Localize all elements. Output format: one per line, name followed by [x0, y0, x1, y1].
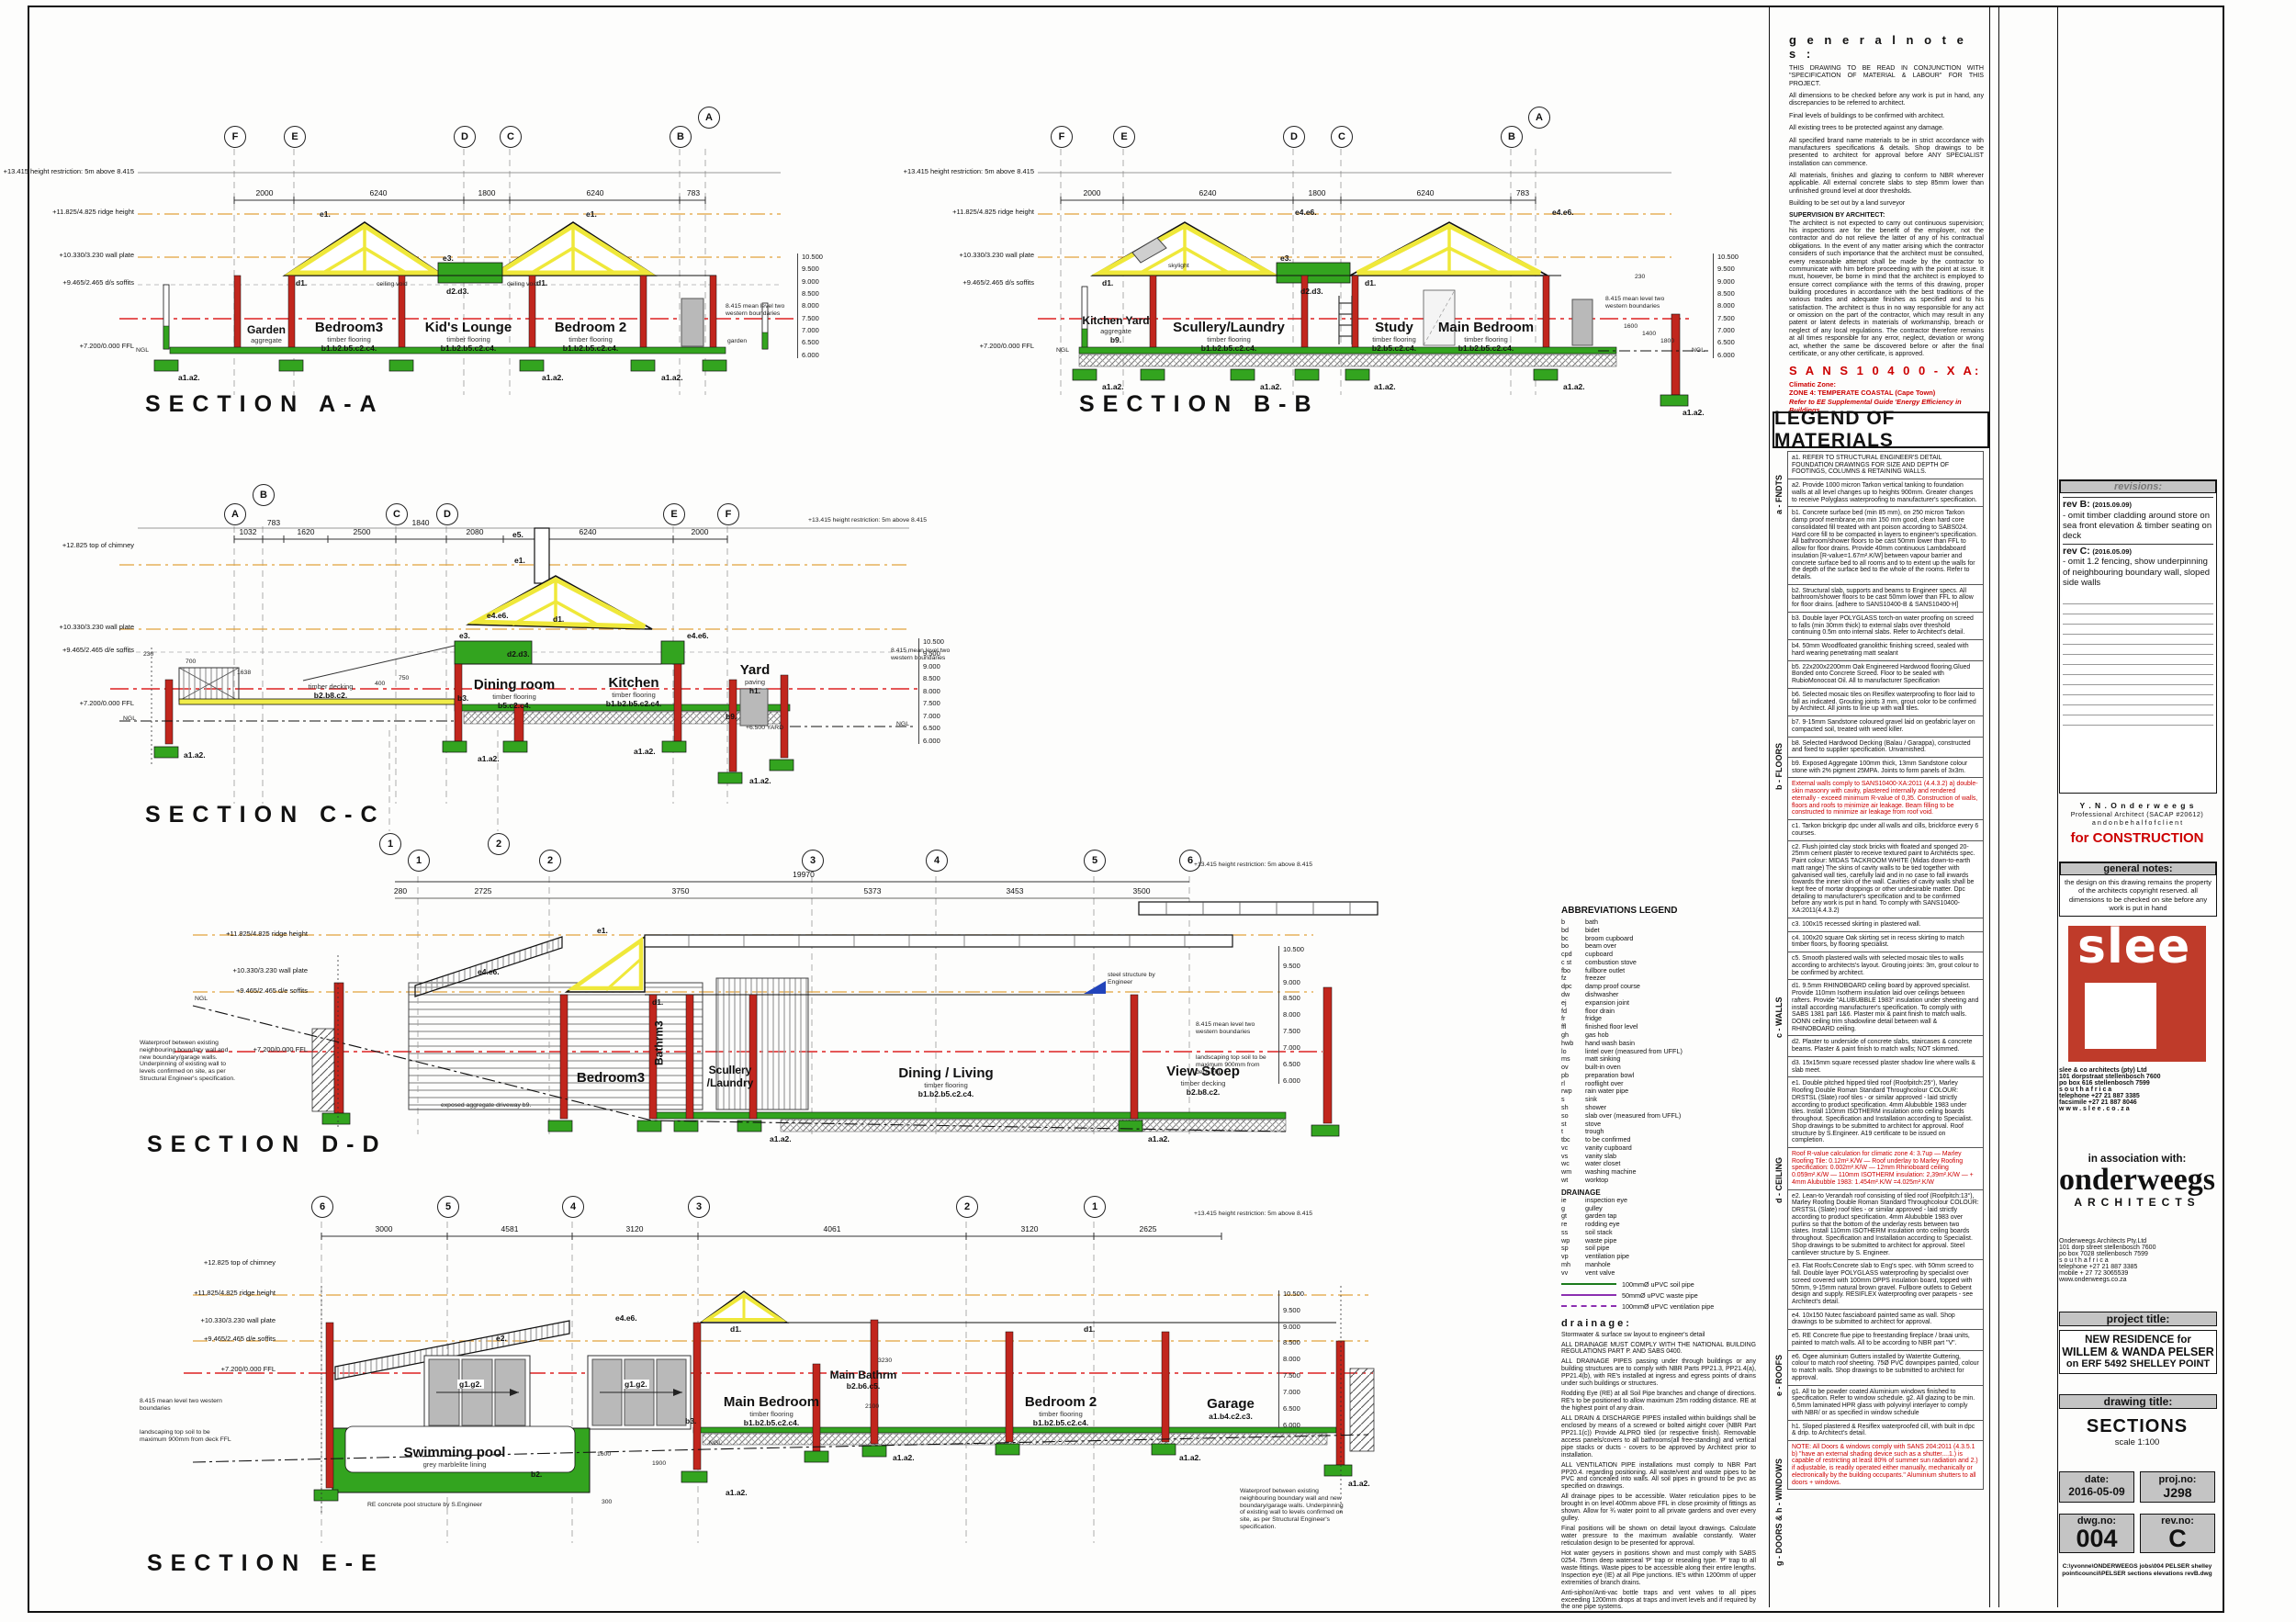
legend-item: e2. Lean-to Verandah roof consisting of … — [1787, 1189, 1984, 1261]
level-tick: 9.500 — [1717, 265, 1739, 273]
architect-behalf: a n d o n b e h a l f o f c l i e n t — [2059, 818, 2215, 827]
dimension: 2000 — [256, 188, 274, 197]
drainage-paragraph: ALL DRAIN & DISCHARGE PIPES installed wi… — [1561, 1415, 1756, 1459]
level-annotation: +11.825/4.825 ridge height — [194, 1289, 276, 1297]
level-tick: 10.500 — [923, 638, 944, 646]
level-tick: 8.000 — [802, 302, 823, 310]
date-value: 2016-05-09 — [2060, 1485, 2133, 1498]
room-label: Kid's Loungetimber flooringb1.b2.b5.c2.c… — [425, 320, 512, 353]
side-dim: 1800 — [1660, 338, 1674, 344]
note-paragraph: All specified brand name materials to be… — [1789, 137, 1984, 167]
legend-divider-left — [1769, 7, 1770, 1607]
supervision-text: The architect is not expected to carry o… — [1789, 220, 1984, 357]
dimension: 4581 — [501, 1224, 519, 1233]
level-tick: 8.500 — [923, 675, 944, 682]
grid-bubble: D — [436, 503, 458, 525]
dimension-total: 19970 — [793, 870, 815, 879]
landscaping-note: landscaping top soil to be maximum 900mm… — [1196, 1054, 1269, 1076]
grid-bubble: C — [1331, 126, 1353, 148]
slee-logo-word: slee — [2077, 926, 2190, 969]
side-dim: 1400 — [1642, 331, 1656, 337]
revisions-box: revisions: rev B: (2015.09.09) - omit ti… — [2059, 479, 2217, 794]
dimension: 3120 — [626, 1224, 644, 1233]
dimension: 1800 — [478, 188, 496, 197]
legend-item: a2. Provide 1000 micron Tarkon vertical … — [1787, 479, 1984, 507]
footing-code: a1.a2. — [1260, 382, 1282, 391]
glazing-code: g1.g2. — [457, 1380, 484, 1389]
waterproof-note: Waterproof between existing neighbouring… — [1240, 1488, 1350, 1531]
legend-category: b - FLOORS — [1774, 743, 1784, 790]
contact-line: po box 616 stellenbosch 7599 — [2059, 1080, 2215, 1087]
legend-title: LEGEND OF MATERIALS — [1773, 411, 1989, 448]
code: e3. — [443, 253, 454, 263]
level-annotation: +9.465/2.465 d/s soffits — [962, 278, 1034, 287]
level-annotation: +10.330/3.230 wall plate — [200, 1316, 276, 1324]
footing-code: a1.a2. — [542, 373, 564, 382]
code: d1. — [296, 278, 307, 287]
general-notes-paragraphs: THIS DRAWING TO BE READ IN CONJUNCTION W… — [1789, 64, 1984, 207]
dimension: 5373 — [864, 886, 882, 895]
dimension: 2080 — [467, 527, 484, 536]
roof-code: e4.e6. — [1552, 208, 1574, 217]
landscaping-note: landscaping top soil to be maximum 900mm… — [140, 1429, 239, 1444]
grid-bubble: C — [500, 126, 522, 148]
grid-bubble: 5 — [1084, 850, 1106, 872]
footing-code: a1.a2. — [661, 373, 683, 382]
level-annotation: +9.465/2.465 d/e soffits — [204, 1335, 276, 1343]
revno-box: rev.no: C — [2140, 1514, 2215, 1553]
level-annotation: +11.825/4.825 ridge height — [952, 208, 1034, 216]
note-paragraph: Final levels of buildings to be confirme… — [1789, 112, 1984, 119]
note-paragraph: THIS DRAWING TO BE READ IN CONJUNCTION W… — [1789, 64, 1984, 87]
level-tick: 6.500 — [802, 339, 823, 346]
grid-bubble: 6 — [311, 1196, 333, 1218]
slee-contact-block: slee & co architects (pty) Ltd101 dorpst… — [2059, 1067, 2215, 1112]
dimension: 3453 — [1007, 886, 1024, 895]
note-paragraph: Building to be set out by a land surveyo… — [1789, 199, 1984, 207]
legend-item: d2. Plaster to underside of concrete sla… — [1787, 1035, 1984, 1056]
level-tick: 9.000 — [923, 663, 944, 670]
legend-item: e4. 10x150 Nutec fasciaboard painted sam… — [1787, 1309, 1984, 1330]
level-tick: 8.000 — [1717, 302, 1739, 310]
note-paragraph: All materials, finishes and glazing to c… — [1789, 172, 1984, 195]
small-dim: 1638 — [237, 670, 251, 676]
code: d1. — [1084, 1324, 1095, 1334]
contact-line: www.onderweegs.co.za — [2059, 1277, 2215, 1283]
level-tick: 8.500 — [802, 290, 823, 298]
level-scale: 10.5009.5009.0008.5008.0007.5007.0006.50… — [918, 638, 944, 744]
footing-code: a1.a2. — [1148, 1134, 1170, 1143]
dimension: 2000 — [692, 527, 709, 536]
association-block: in association with: onderweegs ARCHITEC… — [2059, 1154, 2215, 1209]
small-dim: 750 — [399, 675, 409, 681]
room-label: Bedroom 2timber flooringb1.b2.b5.c2.c4. — [1025, 1394, 1097, 1427]
mean-level-note: 8.415 mean level two western boundaries — [140, 1398, 239, 1413]
onderweegs-contact-block: Onderweegs Architects Pty.Ltd101 dorp st… — [2059, 1238, 2215, 1283]
footing-code: a1.a2. — [478, 754, 500, 763]
contact-line: slee & co architects (pty) Ltd — [2059, 1067, 2215, 1074]
section-dd: 1 2 3 4 5 6 19970 280 2725 3750 5373 345… — [138, 845, 1387, 1162]
architect-signature-block: Y . N . O n d e r w e e g s Professional… — [2059, 801, 2215, 846]
ngl-label: NGL — [709, 1440, 722, 1447]
legend-item: b6. Selected mosaic tiles on Resiflex wa… — [1787, 688, 1984, 716]
level-annotation: +10.330/3.230 wall plate — [232, 966, 308, 974]
drawing-title: SECTIONS — [2059, 1416, 2215, 1437]
project-title-header: project title: — [2059, 1312, 2217, 1326]
copyright-notes-box: general notes: the design on this drawin… — [2059, 862, 2217, 917]
level-tick: 7.500 — [802, 315, 823, 322]
grid-bubble: F — [717, 503, 739, 525]
level-tick: 6.000 — [923, 738, 944, 745]
grid-bubble: 1 — [408, 850, 430, 872]
dwgno-value: 004 — [2060, 1526, 2133, 1551]
code: e1. — [514, 556, 525, 565]
level-tick: 9.000 — [1283, 979, 1304, 986]
ngl-label: NGL — [123, 715, 136, 722]
dimension: 3120 — [1021, 1224, 1039, 1233]
contact-line: w w w . s l e e . c o . z a — [2059, 1106, 2215, 1112]
legend-item: d1. 9.5mm RHINOBOARD ceiling board by ap… — [1787, 979, 1984, 1036]
grid-bubble: D — [1283, 126, 1305, 148]
room-label: Bedroom3 — [577, 1070, 645, 1086]
code: d2.d3. — [446, 287, 469, 296]
level-tick: 6.000 — [1717, 352, 1739, 359]
level-tick: 7.000 — [802, 327, 823, 334]
level-tick: 8.500 — [1717, 290, 1739, 298]
room-label: Kitchentimber flooringb1.b2.b5.c2.c4. — [606, 675, 661, 708]
grid-bubble: A — [224, 503, 246, 525]
drainage-paragraph: Rodding Eye (RE) at all Soil Pipe branch… — [1561, 1391, 1756, 1413]
roof-code: e1. — [320, 209, 331, 219]
pool-dim: 1900 — [652, 1460, 666, 1467]
section-dd-title: SECTION D-D — [147, 1132, 388, 1158]
general-notes-title: g e n e r a l n o t e s : — [1789, 33, 1984, 61]
pipe-legend-waste: 50mmØ uPVC waste pipe — [1561, 1291, 1756, 1300]
drainage-paragraph: Anti-siphon/Anti-vac bottle traps and ve… — [1561, 1590, 1756, 1612]
room-label: Bedroom 2timber flooringb1.b2.b5.c2.c4. — [555, 320, 626, 353]
contact-line: telephone +27 21 887 3385 — [2059, 1264, 2215, 1270]
dimension: 3750 — [672, 886, 690, 895]
for-construction-stamp: for CONSTRUCTION — [2059, 830, 2215, 846]
room-label: Scullery/Laundrytimber flooringb1.b2.b5.… — [1173, 320, 1285, 353]
grid-bubble: 4 — [562, 1196, 584, 1218]
contact-line: 101 dorp street stellenbosch 7600 — [2059, 1245, 2215, 1251]
dimension: 6240 — [580, 527, 597, 536]
level-annotation: +7.200/0.000 FFL — [80, 342, 134, 350]
grid-bubble: 5 — [437, 1196, 459, 1218]
legend-item: e3. Flat Roofs:Concrete slab to Eng's sp… — [1787, 1259, 1984, 1309]
drainage-paragraph: ALL VENTILATION PIPE installations must … — [1561, 1462, 1756, 1492]
footing-code: a1.a2. — [1374, 382, 1396, 391]
grid-bubble: C — [386, 503, 408, 525]
room-label: Kitchen Yardaggregateb9. — [1082, 314, 1149, 344]
footing-code: a1.a2. — [634, 747, 656, 756]
slee-logo: slee — [2068, 926, 2206, 1062]
level-tick: 6.000 — [802, 352, 823, 359]
pool-dim: 300 — [602, 1499, 612, 1505]
level-annotation: +13.415 height restriction: 5m above 8.4… — [4, 167, 134, 175]
dimension: 6240 — [587, 188, 604, 197]
code: e3. — [459, 631, 470, 640]
level-tick: 7.000 — [1283, 1044, 1304, 1052]
footing-code: a1.a2. — [1563, 382, 1585, 391]
legend-item: c1. Tarkon brickgrip dpc under all walls… — [1787, 819, 1984, 840]
footing-code: a1.a2. — [1179, 1453, 1201, 1462]
legend-item: b1. Concrete surface bed (min 85 mm), on… — [1787, 506, 1984, 584]
drainage-paragraph: Hot water geysers in positions shown and… — [1561, 1550, 1756, 1587]
file-path: C:\yvonne\ONDERWEEGS jobs\004 PELSER she… — [2059, 1563, 2215, 1578]
section-aa: F E D C B A 2000 6240 1800 6240 783 +13.… — [83, 119, 1010, 450]
mean-level-note: 8.415 mean level two western boundaries — [1605, 296, 1674, 310]
date-box: date: 2016-05-09 — [2059, 1471, 2134, 1503]
room-label: Main Bedroomtimber flooringb1.b2.b5.c2.c… — [724, 1394, 819, 1427]
ceiling-void-label: ceiling void — [377, 281, 408, 287]
dimension: 3000 — [376, 1224, 393, 1233]
driveway-label: exposed aggregate driveway b9. — [441, 1102, 531, 1109]
dimension: 783 — [1516, 188, 1529, 197]
room-label: Dining / Livingtimber flooringb1.b2.b5.c… — [898, 1065, 993, 1098]
level-tick: 6.500 — [1283, 1405, 1304, 1413]
legend-item: Roof R-value calculation for climatic zo… — [1787, 1147, 1984, 1190]
code: e5. — [512, 530, 523, 539]
onderweegs-logo-word: onderweegs — [2059, 1165, 2215, 1196]
roof-code: e4.e6. — [478, 967, 500, 976]
legend-items: a1. REFER TO STRUCTURAL ENGINEER'S DETAI… — [1787, 452, 1984, 1490]
level-tick: 10.500 — [802, 253, 823, 261]
level-tick: 6.500 — [1717, 339, 1739, 346]
grid-bubble: 4 — [926, 850, 948, 872]
room-label: Bathrm3 — [653, 1056, 698, 1069]
sans-line: Climatic Zone: — [1789, 380, 1984, 389]
footing-code: a1.a2. — [770, 1134, 792, 1143]
column-divider — [1998, 7, 1999, 1607]
dimension: 783 — [687, 188, 700, 197]
level-annotation: +13.415 height restriction: 5m above 8.4… — [904, 167, 1034, 175]
glazing-code: g1.g2. — [623, 1380, 649, 1389]
drainage-paragraph: All drainage pipes to be accessible. Wat… — [1561, 1493, 1756, 1523]
level-annotation: +9.465/2.465 d/s soffits — [62, 278, 134, 287]
level-annotation: +7.200/0.000 FFL — [980, 342, 1034, 350]
contact-line: s o u t h a f r i c a — [2059, 1087, 2215, 1093]
abbreviations-list: bbathbdbidetbcbroom cupboardbobeam overc… — [1561, 918, 1756, 1185]
roof-code: e2. — [496, 1334, 507, 1343]
dimension: 1620 — [298, 527, 315, 536]
drawing-sheet: F E D C B A 2000 6240 1800 6240 783 +13.… — [0, 0, 2296, 1622]
level-scale: 10.5009.5009.0008.5008.0007.5007.0006.50… — [797, 253, 823, 358]
side-dim: 1600 — [1624, 323, 1638, 330]
grid-bubble: B — [253, 484, 275, 506]
grid-bubble: 3 — [802, 850, 824, 872]
project-line: WILLEM & WANDA PELSER — [2060, 1346, 2216, 1358]
level-tick: 10.500 — [1283, 946, 1304, 953]
project-title-box: NEW RESIDENCE for WILLEM & WANDA PELSER … — [2059, 1330, 2217, 1374]
grid-bubble: 2 — [539, 850, 561, 872]
code: d1. — [1102, 278, 1113, 287]
supervision-title: SUPERVISION BY ARCHITECT: — [1789, 211, 1885, 219]
legend-item: b4. 50mm Woodfloated granolithic finishi… — [1787, 639, 1984, 660]
drainage-paragraph: ALL DRAINAGE PIPES passing under through… — [1561, 1358, 1756, 1388]
level-annotation: +12.825 top of chimney — [204, 1258, 276, 1267]
dimension: 3500 — [1133, 886, 1151, 895]
onderweegs-architects-label: ARCHITECTS — [2059, 1196, 2215, 1209]
dimension: 1840 — [412, 518, 430, 527]
level-tick: 9.000 — [802, 278, 823, 286]
level-tick: 9.500 — [1283, 963, 1304, 970]
legend-item: b2. Structural slab, supports and beams … — [1787, 584, 1984, 613]
small-dim: 400 — [375, 681, 385, 687]
grid-bubble: 3 — [688, 1196, 710, 1218]
dwgno-box: dwg.no: 004 — [2059, 1514, 2134, 1553]
level-tick: 9.000 — [1717, 278, 1739, 286]
level-scale: 10.5009.5009.0008.5008.0007.5007.0006.50… — [1278, 1290, 1304, 1428]
ngl-label: NGL — [1692, 347, 1705, 354]
dimension: 783 — [267, 518, 280, 527]
level-tick: 6.000 — [1283, 1422, 1304, 1429]
code: e3. — [1280, 253, 1291, 263]
drainage-abbr-list: ieinspection eyeggulleygtgarden taprerod… — [1561, 1197, 1756, 1278]
legend-item: c5. Smooth plastered walls with selected… — [1787, 952, 1984, 980]
level-tick: 10.500 — [1283, 1290, 1304, 1298]
side-dim: 230 — [1635, 274, 1645, 280]
footing-code: a1.a2. — [726, 1488, 748, 1497]
revision-entry: rev B: (2015.09.09) - omit timber claddi… — [2063, 497, 2213, 542]
ngl-label: NGL — [896, 721, 909, 727]
grid-bubble: D — [454, 126, 476, 148]
roof-code: e1. — [586, 209, 597, 219]
footing-code: a1.a2. — [178, 373, 200, 382]
code: d2.d3. — [507, 649, 530, 659]
dimension: 2725 — [475, 886, 492, 895]
level-annotation: +9.465/2.465 d/e soffits — [62, 646, 134, 654]
pipe-legend-vent: 100mmØ uPVC ventilation pipe — [1561, 1302, 1756, 1311]
drainage-notes: Stormwater & surface sw layout to engine… — [1561, 1332, 1756, 1612]
level-scale: 10.5009.5009.0008.5008.0007.5007.0006.50… — [1278, 946, 1304, 1084]
level-tick: 9.500 — [1283, 1307, 1304, 1314]
grid-bubble: 2 — [956, 1196, 978, 1218]
note-paragraph: All existing trees to be protected again… — [1789, 124, 1984, 131]
legend-item: b8. Selected Hardwood Decking (Balau / G… — [1787, 737, 1984, 758]
level-annotation: +9.465/2.465 d/e soffits — [236, 986, 308, 995]
level-tick: 9.000 — [1283, 1324, 1304, 1331]
level-annotation: +10.330/3.230 wall plate — [959, 251, 1034, 259]
level-tick: 8.000 — [1283, 1011, 1304, 1019]
ngl-label: NGL — [195, 996, 208, 1002]
code: b3. — [457, 693, 468, 703]
decking-label: timber deckingb2.b8.c2. — [309, 682, 354, 700]
restriction-note: +13.415 height restriction: 5m above 8.4… — [808, 517, 928, 524]
level-tick: 7.500 — [1283, 1372, 1304, 1380]
level-tick: 7.500 — [923, 700, 944, 707]
projno-box: proj.no: J298 — [2140, 1471, 2215, 1503]
legend-category: d - CEILING — [1774, 1157, 1784, 1203]
abbreviations-title: ABBREVIATIONS LEGEND — [1561, 906, 1756, 916]
code: b9. — [726, 712, 737, 721]
level-tick: 6.000 — [1283, 1077, 1304, 1085]
legend-item: c3. 100x15 recessed skirting in plastere… — [1787, 918, 1984, 932]
waste-pipe-symbol — [1561, 1294, 1616, 1296]
slee-logo-notch — [2085, 983, 2156, 1049]
code: d1. — [1365, 278, 1376, 287]
code: d1. — [730, 1324, 741, 1334]
drainage-paragraph: ALL DRAINAGE MUST COMPLY WITH THE NATION… — [1561, 1342, 1756, 1357]
contact-line: Onderweegs Architects Pty.Ltd — [2059, 1238, 2215, 1245]
level-tick: 9.500 — [923, 650, 944, 658]
section-cc-title: SECTION C-C — [145, 802, 386, 828]
level-annotation: +11.825/4.825 ridge height — [52, 208, 134, 216]
code: d1. — [652, 997, 663, 1007]
legend-item: a1. REFER TO STRUCTURAL ENGINEER'S DETAI… — [1787, 451, 1984, 479]
footing-code: a1.a2. — [1102, 382, 1124, 391]
revision-entry: rev C: (2016.05.09) - omit 1.2 fencing, … — [2063, 544, 2213, 589]
dimension: 2000 — [1084, 188, 1101, 197]
legend-item: g1. All to be powder coated Aluminium wi… — [1787, 1385, 1984, 1421]
small-dim: 230 — [143, 651, 153, 658]
level-tick: 7.500 — [1283, 1028, 1304, 1035]
roof-code: e1. — [597, 926, 608, 935]
legend-category: e - ROOFS — [1774, 1355, 1784, 1396]
section-bb-title: SECTION B-B — [1079, 391, 1320, 418]
dimension: 1800 — [1309, 188, 1326, 197]
grid-bubble: B — [1501, 126, 1523, 148]
level-tick: 7.000 — [923, 713, 944, 720]
roof-code: e4.e6. — [1295, 208, 1317, 217]
ngl-label: NGL — [136, 347, 149, 354]
pool-structure-note: RE concrete pool structure by S.Engineer — [367, 1502, 482, 1508]
copyright-text: the design on this drawing remains the p… — [2060, 875, 2216, 916]
level-annotation: +7.200/0.000 FFL — [253, 1045, 308, 1053]
small-dim: 700 — [186, 659, 196, 665]
grid-bubble: F — [1051, 126, 1073, 148]
architect-role: Professional Architect (SACAP #20612) — [2059, 810, 2215, 818]
legend-item: b3. Double layer POLYGLASS torch-on wate… — [1787, 612, 1984, 640]
section-ee-geometry — [138, 1185, 1387, 1589]
room-label: Studytimber flooringb2.b5.c2.c4. — [1372, 320, 1416, 353]
legend-item: External walls comply to SANS10400-XA:20… — [1787, 777, 1984, 820]
soil-pipe-symbol — [1561, 1283, 1616, 1285]
titleblock-divider — [2057, 7, 2058, 1607]
level-annotation: +11.825/4.825 ridge height — [226, 929, 308, 938]
revision-blank-lines — [2063, 594, 2213, 732]
dimension: 280 — [394, 886, 407, 895]
dimension: 6240 — [370, 188, 388, 197]
dimension: 1032 — [240, 527, 257, 536]
grid-bubble: A — [698, 107, 720, 129]
footing-code: a1.a2. — [749, 776, 771, 785]
dimension: 2500 — [354, 527, 371, 536]
pool-code: b2. — [531, 1470, 542, 1479]
bath-dim: 2100 — [865, 1403, 879, 1410]
legend-item: e5. RE Concrete flue pipe to freestandin… — [1787, 1329, 1984, 1350]
skylight-label: skylight — [1168, 263, 1189, 269]
revno-value: C — [2141, 1526, 2214, 1551]
room-label: Yardpavingh1. — [740, 662, 771, 695]
section-aa-title: SECTION A-A — [145, 391, 385, 418]
drawing-title-header: drawing title: — [2059, 1394, 2217, 1409]
contact-line: s o u t h a f r i c a — [2059, 1257, 2215, 1264]
contact-line: telephone +27 21 887 3385 — [2059, 1093, 2215, 1099]
room-label: Main Bedroomtimber flooringb1.b2.b5.c2.c… — [1438, 320, 1534, 353]
dimension: 6240 — [1199, 188, 1217, 197]
level-annotation: +7.200/0.000 FFL — [221, 1365, 276, 1373]
level-tick: 7.500 — [1717, 315, 1739, 322]
drawing-scale: scale 1:100 — [2059, 1437, 2215, 1447]
room-label: Bedroom3timber flooringb1.b2.b5.c2.c4. — [315, 320, 383, 353]
restriction-note: +13.415 height restriction: 5m above 8.4… — [1194, 862, 1322, 869]
level-tick: 7.000 — [1283, 1389, 1304, 1396]
footing-code: a1.a2. — [893, 1453, 915, 1462]
legend-category: c - WALLS — [1774, 997, 1784, 1039]
legend-item: NOTE: All Doors & windows comply with SA… — [1787, 1440, 1984, 1490]
